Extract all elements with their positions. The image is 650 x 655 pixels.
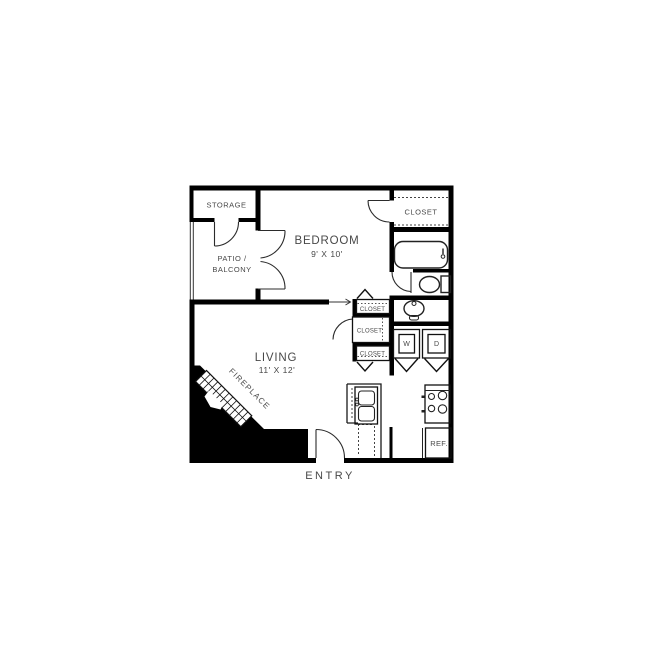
wall-right-column-a bbox=[390, 186, 395, 201]
toilet-bowl bbox=[420, 277, 440, 293]
bedroom-closet: CLOSET bbox=[394, 198, 449, 226]
closet-bifold-down-icon bbox=[357, 362, 373, 371]
washer-bifold-down-icon bbox=[395, 359, 418, 372]
wall-storage-bottom-a bbox=[190, 218, 215, 222]
bathroom-door bbox=[392, 272, 411, 293]
wall-kitchen-entry-stub bbox=[390, 427, 393, 458]
wall-closet-bottom bbox=[390, 227, 454, 232]
kitchen-sink-basin-bottom bbox=[359, 407, 375, 422]
wall-tub-toilet-divider bbox=[413, 269, 454, 273]
fireplace: FIREPLACE bbox=[190, 366, 309, 459]
burner-icon bbox=[428, 405, 434, 411]
dryer-label: D bbox=[434, 341, 439, 348]
storage-door bbox=[215, 222, 239, 246]
burner-icon bbox=[438, 391, 446, 399]
kitchen-sink-basin-top bbox=[359, 391, 375, 405]
floor-plan-page: FIREPLACE bbox=[0, 0, 650, 650]
wall-patio-bedroom-upper bbox=[256, 186, 261, 231]
wall-storage-left bbox=[190, 186, 194, 223]
hall-closets: CLOSET CLOSET CLOSET bbox=[353, 290, 390, 372]
living-label: LIVING bbox=[255, 352, 298, 364]
patio-french-door-lower bbox=[258, 262, 285, 290]
bedroom-closet-label: CLOSET bbox=[404, 208, 437, 217]
floor-plan-drawing: FIREPLACE bbox=[0, 0, 650, 650]
stove-knob-icon bbox=[422, 396, 425, 399]
hall-closet-top-label: CLOSET bbox=[360, 307, 385, 313]
stove-knob-icon bbox=[422, 410, 425, 413]
kitchen: REF. bbox=[347, 384, 451, 458]
entry-label: ENTRY bbox=[305, 470, 355, 482]
wall-toilet-room-bottom bbox=[390, 296, 454, 301]
bathtub bbox=[395, 242, 448, 269]
patio-label-line1: PATIO / bbox=[217, 254, 246, 263]
hall-closet-middle-label: CLOSET bbox=[357, 329, 382, 335]
bathroom-sink-bowl bbox=[404, 301, 424, 317]
kitchen-faucet-icon-2 bbox=[356, 403, 359, 406]
closet-bifold-up-icon bbox=[357, 290, 373, 299]
patio-label-line2: BALCONY bbox=[212, 265, 251, 274]
washer-label: W bbox=[403, 341, 410, 348]
bathroom bbox=[395, 242, 451, 321]
wall-sink-laundry-divider bbox=[390, 322, 454, 327]
burner-icon bbox=[429, 394, 435, 400]
wall-bottom-right-of-entry bbox=[344, 458, 454, 463]
bathroom-sink-faucet-icon bbox=[412, 302, 416, 306]
bedroom-label: BEDROOM bbox=[294, 235, 359, 247]
bedroom-closet-door bbox=[368, 201, 390, 223]
burner-icon bbox=[438, 405, 446, 413]
wall-bottom-left-of-entry bbox=[190, 458, 317, 463]
patio-railing bbox=[190, 222, 193, 300]
kitchen-faucet-icon bbox=[356, 398, 359, 401]
wall-top bbox=[190, 186, 454, 191]
living-dimensions: 11' X 12' bbox=[259, 365, 295, 375]
refrigerator-label: REF. bbox=[430, 439, 447, 448]
entry-door bbox=[316, 430, 345, 459]
hall-closet-middle-door bbox=[333, 319, 353, 340]
opening-arrow bbox=[329, 299, 351, 305]
wall-bedroom-living bbox=[190, 300, 330, 305]
hall-closet-bottom-label: CLOSET bbox=[360, 352, 385, 358]
bedroom-dimensions: 9' X 10' bbox=[311, 249, 343, 259]
patio-french-door-upper bbox=[258, 231, 285, 259]
storage-label: STORAGE bbox=[206, 201, 246, 210]
laundry: W D bbox=[394, 330, 451, 372]
dryer-bifold-down-icon bbox=[425, 359, 449, 372]
tub-drain-icon bbox=[441, 255, 445, 259]
